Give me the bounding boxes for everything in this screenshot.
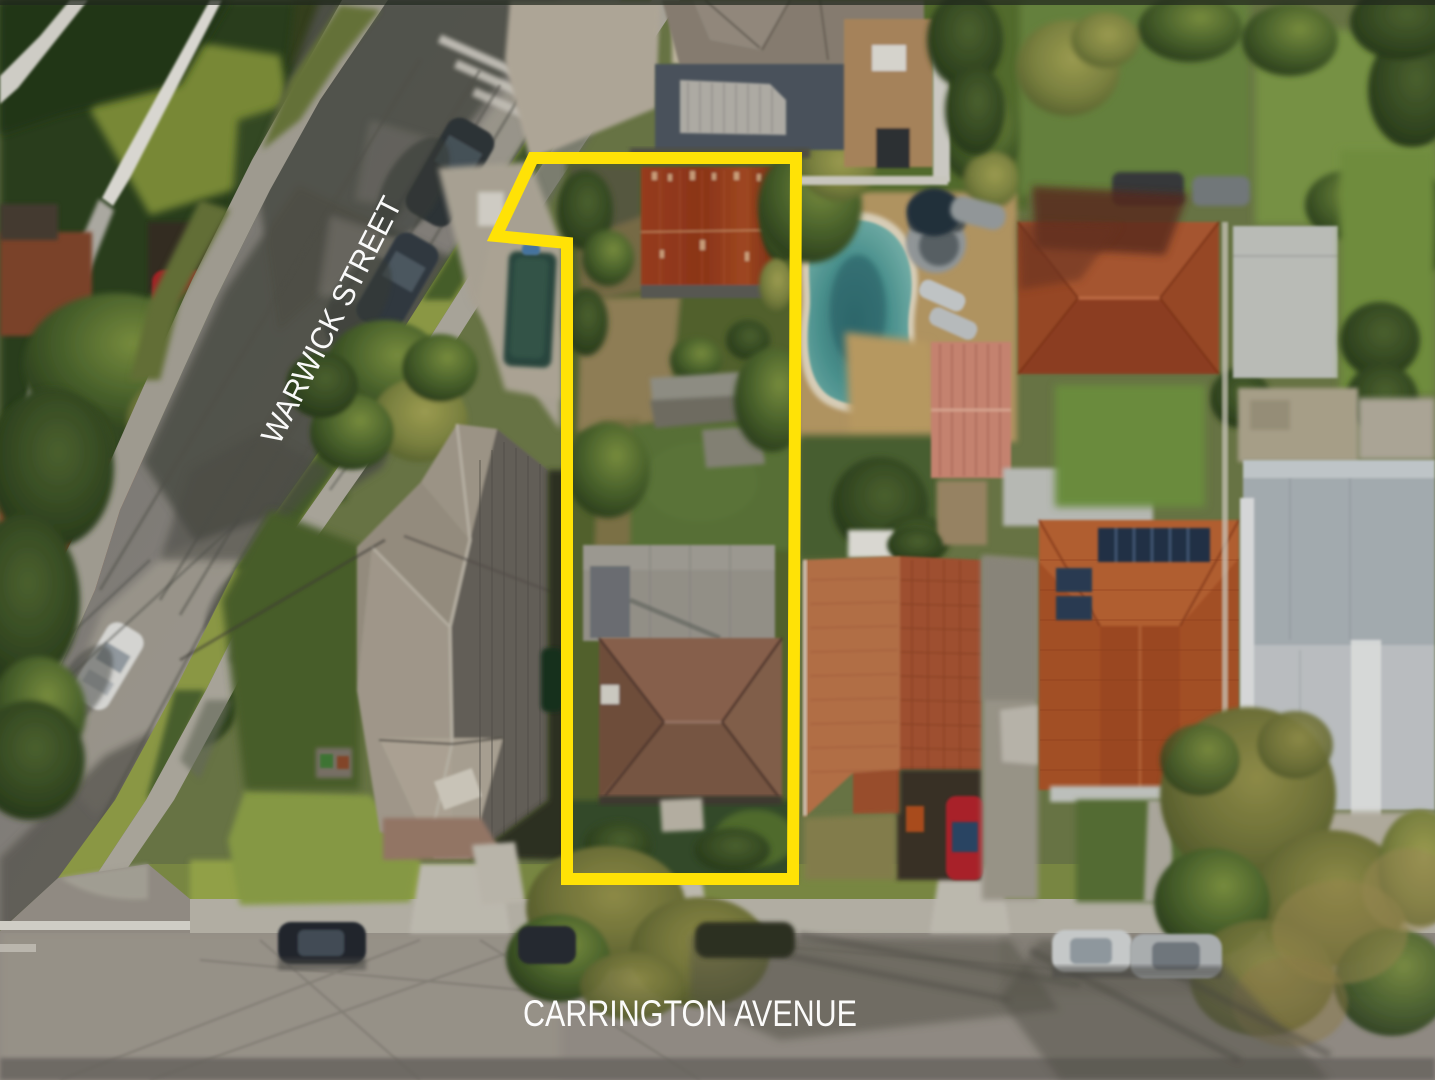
svg-text:CARRINGTON AVENUE: CARRINGTON AVENUE [523,993,857,1034]
